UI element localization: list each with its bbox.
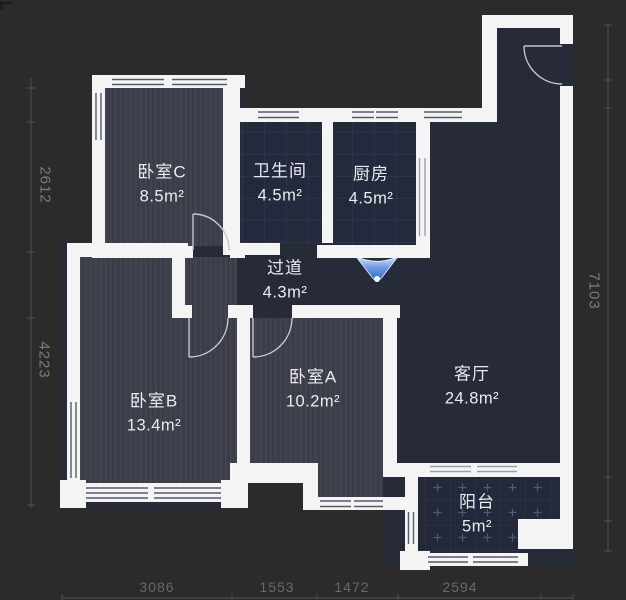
dimension-label-bottom-4: 2594 <box>442 579 477 595</box>
dimension-label-left-2: 4223 <box>36 341 53 378</box>
dimension-label-bottom-3: 1472 <box>334 579 369 595</box>
bedroom-b-floor <box>80 257 237 483</box>
dimension-label-bottom-2: 1553 <box>259 579 294 595</box>
entry-door-opening <box>560 44 573 86</box>
bedroom-c-floor <box>105 88 223 246</box>
floorplan-canvas[interactable]: 卧室C 8.5m² 卫生间 4.5m² 厨房 4.5m² 过道 4.3m² 卧室… <box>0 0 626 600</box>
dimension-label-bottom-1: 3086 <box>139 579 174 595</box>
floorplan-drawing <box>0 0 626 600</box>
bathroom-floor <box>240 122 322 243</box>
dimension-label-left-1: 2612 <box>37 166 54 203</box>
kitchen-floor <box>333 122 416 245</box>
dimension-label-right-1: 7103 <box>586 272 603 309</box>
corner-artifact <box>0 3 13 10</box>
